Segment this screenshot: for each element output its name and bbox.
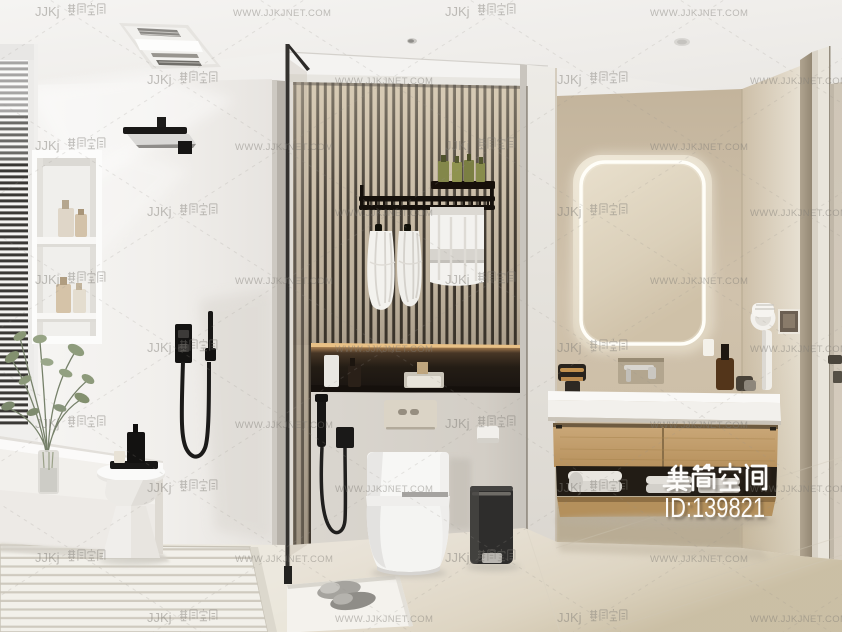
svg-text:ID:139821: ID:139821 [664,492,765,523]
